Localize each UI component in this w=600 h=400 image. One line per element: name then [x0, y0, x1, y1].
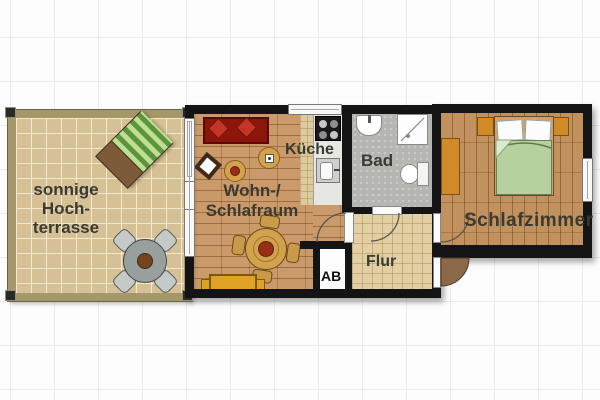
wall — [342, 105, 352, 213]
nightstand-icon — [477, 117, 494, 136]
burner — [330, 131, 338, 139]
table-centerpiece — [137, 253, 153, 269]
double-bed-icon — [494, 116, 554, 196]
pillow — [524, 119, 551, 141]
shower-icon — [397, 114, 428, 145]
terrace-label-line3: terrasse — [18, 218, 114, 237]
burner — [319, 131, 327, 139]
burner — [319, 120, 327, 128]
railing-post — [5, 290, 16, 301]
sink-icon — [316, 158, 340, 183]
hall-living-door-leaf — [344, 212, 354, 243]
hallway-floor — [352, 213, 432, 289]
terrace-label: sonnige Hoch- terrasse — [18, 180, 114, 237]
duvet — [496, 140, 552, 195]
plant-table-icon — [224, 160, 246, 182]
sink-basin — [320, 162, 333, 180]
wall — [402, 207, 432, 214]
dining-table-set-icon — [234, 217, 297, 280]
terrace-window-door — [184, 118, 195, 257]
tray-dot — [268, 157, 271, 160]
window-frame-line — [587, 161, 588, 199]
bathroom-label: Bad — [361, 151, 393, 171]
side-table-top — [200, 158, 217, 175]
bedroom-label: Schlafzimmer — [464, 210, 594, 232]
faucet — [334, 169, 340, 171]
bathroom-door-leaf — [372, 206, 402, 215]
window-frame-line — [189, 121, 190, 254]
storage-label: AB — [321, 268, 341, 284]
outdoor-table-set-icon — [118, 234, 172, 288]
stove-icon — [315, 116, 341, 141]
entrance-door-opening — [433, 257, 441, 288]
bedroom-door-leaf — [433, 213, 441, 243]
burner — [330, 120, 338, 128]
wardrobe-icon — [441, 138, 460, 195]
window-frame-line — [291, 109, 339, 110]
bedroom-window — [582, 158, 593, 202]
living-label-line2: Schlafraum — [196, 201, 308, 221]
washbasin-icon — [356, 115, 382, 136]
kitchen-window — [288, 104, 342, 115]
railing-post — [5, 107, 16, 118]
sofa-cushion — [208, 118, 229, 139]
living-room-label: Wohn-/ Schlafraum — [196, 181, 308, 221]
sofa-cushion — [236, 117, 257, 138]
living-room-floor-extension — [313, 205, 344, 241]
entrance-door-swing — [441, 258, 469, 286]
plant-table-icon — [258, 147, 280, 169]
hallway-label: Flur — [366, 253, 396, 271]
wall — [432, 245, 592, 258]
terrace-label-line2: Hoch- — [18, 199, 114, 218]
living-label-line1: Wohn-/ — [196, 181, 308, 201]
toilet-tank — [417, 162, 429, 186]
sofa-icon — [203, 117, 269, 144]
wall — [352, 207, 372, 214]
wall — [432, 104, 592, 113]
plant — [230, 166, 240, 176]
faucet — [368, 115, 371, 123]
pillow — [496, 119, 523, 142]
floor-plan-canvas: sonnige Hoch- terrasse Wohn-/ — [0, 0, 600, 400]
wall — [345, 243, 352, 298]
nightstand-icon — [552, 117, 569, 136]
terrace-label-line1: sonnige — [18, 180, 114, 199]
wall — [313, 249, 320, 298]
kitchen-label: Küche — [285, 141, 334, 159]
